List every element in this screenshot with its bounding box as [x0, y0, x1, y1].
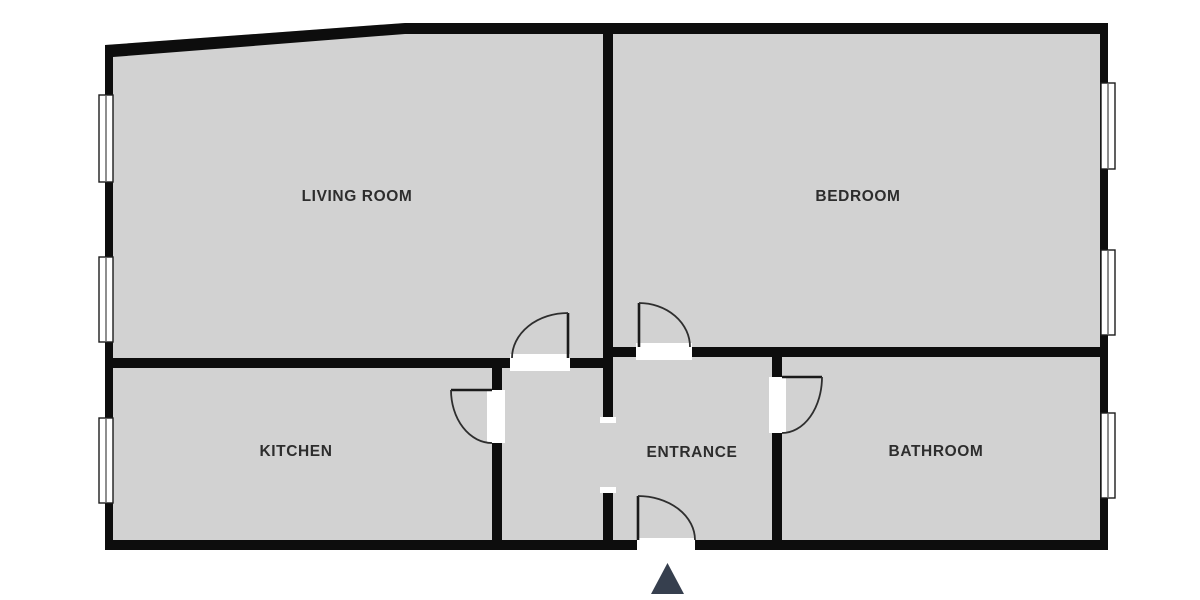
- passage-cap-bottom: [600, 487, 616, 493]
- room-label-kitchen: KITCHEN: [259, 443, 332, 460]
- kitchen-hall-wall-b: [492, 443, 502, 550]
- bedroom-hall-wall-a: [613, 347, 638, 357]
- bathroom-door-opening: [769, 377, 786, 433]
- bedroom-door-opening: [636, 343, 692, 360]
- hall-bathroom-wall-b: [772, 433, 782, 550]
- window-icon: [1101, 83, 1115, 169]
- hall-bathroom-wall-a: [772, 347, 782, 377]
- bedroom-hall-wall-b: [690, 347, 1100, 357]
- room-label-living-room: LIVING ROOM: [302, 188, 413, 205]
- kitchen-hall-wall-a: [492, 358, 502, 390]
- living-kitchen-wall-a: [113, 358, 512, 368]
- passage-cap-top: [600, 417, 616, 423]
- room-label-entrance: ENTRANCE: [647, 444, 738, 461]
- window-icon: [99, 418, 113, 503]
- front-door-opening: [637, 538, 695, 553]
- kitchen-door-opening: [487, 390, 505, 443]
- top-wall: [405, 23, 1108, 34]
- bottom-wall-right: [695, 540, 1108, 550]
- window-icon: [99, 257, 113, 342]
- window-icon: [1101, 413, 1115, 498]
- central-wall-upper: [603, 23, 613, 417]
- floorplan: LIVING ROOM BEDROOM KITCHEN ENTRANCE BAT…: [0, 0, 1200, 600]
- room-label-bathroom: BATHROOM: [889, 443, 984, 460]
- window-icon: [99, 95, 113, 182]
- room-label-bedroom: BEDROOM: [815, 188, 900, 205]
- floorplan-svg: LIVING ROOM BEDROOM KITCHEN ENTRANCE BAT…: [0, 0, 1200, 600]
- window-icon: [1101, 250, 1115, 335]
- entrance-arrow-icon: [651, 563, 684, 594]
- central-wall-lower-stub: [603, 493, 613, 550]
- living-door-opening: [510, 354, 570, 371]
- bottom-wall-left: [105, 540, 637, 550]
